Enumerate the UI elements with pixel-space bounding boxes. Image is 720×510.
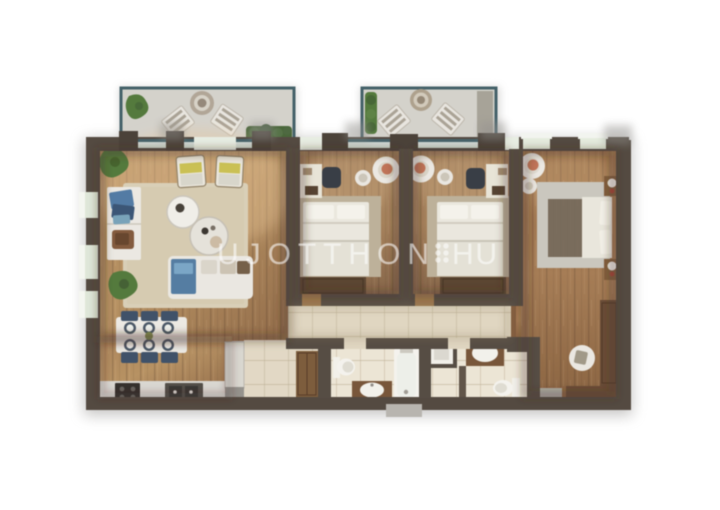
svg-text:UJOTTHON: UJOTTHON xyxy=(217,238,429,271)
svg-text:HU: HU xyxy=(452,238,497,271)
